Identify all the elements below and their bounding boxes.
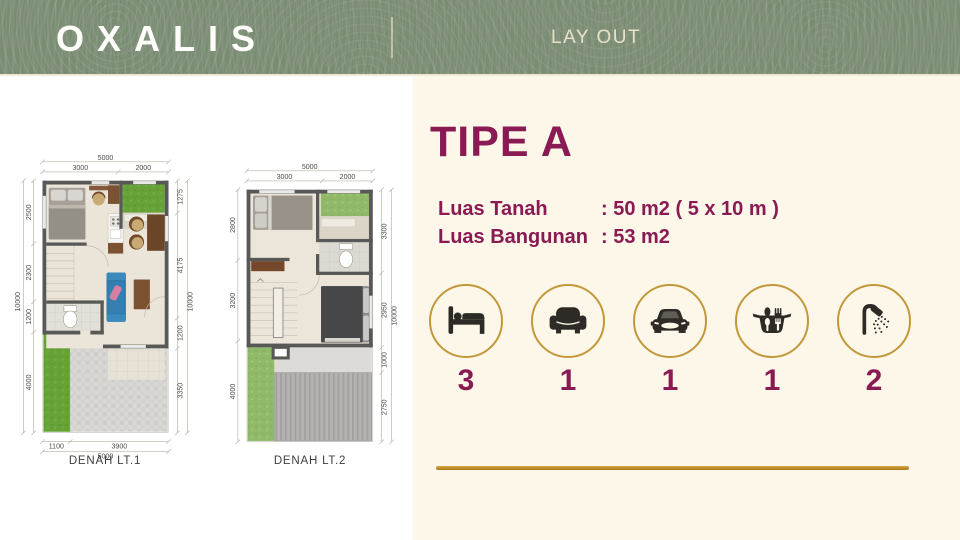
kitchen-icon xyxy=(749,298,795,344)
header-bar: OXALIS LAY OUT xyxy=(0,0,960,76)
carport-count: 1 xyxy=(662,364,679,398)
feature-row: 3 1 xyxy=(428,284,912,398)
feature-bedrooms: 3 xyxy=(428,284,504,398)
svg-text:2000: 2000 xyxy=(340,174,356,181)
kitchen-count: 1 xyxy=(764,364,781,398)
feature-livingroom: 1 xyxy=(530,284,606,398)
svg-text:4000: 4000 xyxy=(230,384,237,400)
svg-text:3000: 3000 xyxy=(277,174,293,181)
svg-text:4175: 4175 xyxy=(177,257,184,273)
spec-value: : 50 m2 ( 5 x 10 m ) xyxy=(601,195,779,223)
spec-row-building: Luas Bangunan : 53 m2 xyxy=(438,223,779,251)
svg-text:1100: 1100 xyxy=(49,444,64,451)
bathroom-count: 2 xyxy=(866,364,883,398)
svg-text:3900: 3900 xyxy=(112,444,128,451)
svg-text:1200: 1200 xyxy=(26,309,33,325)
svg-text:3300: 3300 xyxy=(382,223,389,239)
spec-row-land: Luas Tanah : 50 m2 ( 5 x 10 m ) xyxy=(438,195,779,223)
svg-text:2950: 2950 xyxy=(382,302,389,318)
livingroom-count: 1 xyxy=(560,364,577,398)
svg-text:1200: 1200 xyxy=(177,325,184,341)
svg-text:2300: 2300 xyxy=(26,265,33,281)
shower-icon xyxy=(851,298,897,344)
slide: OXALIS LAY OUT TIPE A Luas Tanah : 50 m2… xyxy=(0,0,960,540)
svg-text:4000: 4000 xyxy=(26,374,33,390)
feature-circle xyxy=(429,284,503,358)
feature-circle xyxy=(531,284,605,358)
svg-text:2800: 2800 xyxy=(230,217,237,233)
car-icon xyxy=(647,298,693,344)
svg-text:2750: 2750 xyxy=(382,399,389,415)
svg-text:10000: 10000 xyxy=(392,306,399,326)
feature-circle xyxy=(735,284,809,358)
feature-kitchen: 1 xyxy=(734,284,810,398)
bedroom-count: 3 xyxy=(458,364,475,398)
header-divider xyxy=(391,17,393,58)
svg-text:3200: 3200 xyxy=(230,293,237,309)
svg-text:1000: 1000 xyxy=(382,352,389,368)
brand-logo: OXALIS xyxy=(56,18,268,60)
floorplan-lt1: 5000 3000 2000 1100 3900 5000 2500 2300 … xyxy=(12,153,199,463)
spec-label: Luas Tanah xyxy=(438,195,601,223)
spec-list: Luas Tanah : 50 m2 ( 5 x 10 m ) Luas Ban… xyxy=(438,195,779,251)
floorplan-lt2-drawing: 5000 3000 2000 2800 3200 4000 3300 2950 … xyxy=(230,164,399,444)
type-title: TIPE A xyxy=(430,118,573,167)
feature-circle xyxy=(633,284,707,358)
floorplan-lt1-drawing: 5000 3000 2000 1100 3900 5000 2500 2300 … xyxy=(15,155,195,461)
feature-bathrooms: 2 xyxy=(836,284,912,398)
feature-circle xyxy=(837,284,911,358)
spec-value: : 53 m2 xyxy=(601,223,670,251)
svg-text:10000: 10000 xyxy=(15,292,22,312)
spec-label: Luas Bangunan xyxy=(438,223,601,251)
svg-text:2500: 2500 xyxy=(26,204,33,220)
gold-divider-line xyxy=(436,466,909,470)
sofa-icon xyxy=(545,298,591,344)
feature-carport: 1 xyxy=(632,284,708,398)
svg-text:1275: 1275 xyxy=(177,189,184,205)
bed-icon xyxy=(443,298,489,344)
svg-text:5000: 5000 xyxy=(302,164,318,171)
floorplan-lt2-caption: DENAH LT.2 xyxy=(247,455,373,467)
svg-text:3350: 3350 xyxy=(177,383,184,399)
svg-text:2000: 2000 xyxy=(135,165,151,172)
svg-text:5000: 5000 xyxy=(98,155,114,162)
svg-text:3000: 3000 xyxy=(72,165,88,172)
floorplan-lt2: 5000 3000 2000 2800 3200 4000 3300 2950 … xyxy=(229,162,403,452)
floorplan-lt1-caption: DENAH LT.1 xyxy=(42,455,168,467)
page-title: LAY OUT xyxy=(551,27,641,49)
svg-text:10000: 10000 xyxy=(187,292,194,312)
